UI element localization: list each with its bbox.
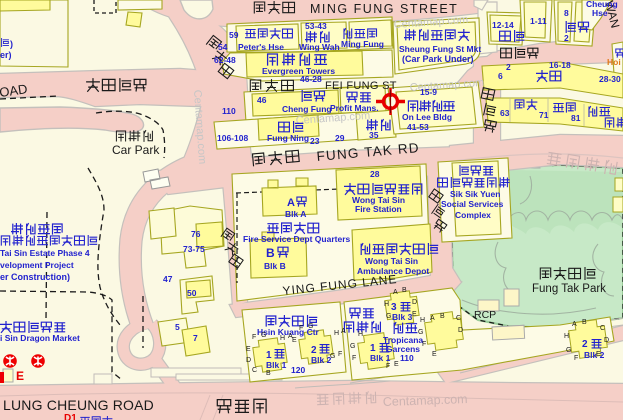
- svg-text:F: F: [252, 334, 256, 341]
- svg-text:110: 110: [400, 353, 414, 363]
- svg-text:F: F: [338, 351, 342, 358]
- svg-text:G: G: [261, 332, 266, 339]
- svg-text:41-53: 41-53: [407, 122, 429, 132]
- svg-text:D: D: [604, 337, 609, 344]
- svg-text:C: C: [252, 367, 257, 374]
- svg-text:er Construction): er Construction): [0, 272, 70, 282]
- svg-text:46: 46: [257, 95, 267, 105]
- svg-text:47: 47: [163, 274, 173, 284]
- svg-text:Ming Fung: Ming Fung: [341, 39, 384, 49]
- svg-text:Tai Sin Estate Phase 4: Tai Sin Estate Phase 4: [0, 248, 90, 258]
- svg-text:B: B: [266, 370, 271, 377]
- svg-text:Hoi: Hoi: [607, 57, 621, 67]
- svg-text:RCP: RCP: [474, 309, 496, 321]
- svg-text:Blk A: Blk A: [285, 209, 306, 219]
- svg-text:8: 8: [564, 8, 569, 18]
- svg-text:7: 7: [193, 333, 198, 343]
- svg-text:35: 35: [369, 130, 379, 140]
- svg-text:G: G: [418, 329, 423, 336]
- svg-text:28-30: 28-30: [599, 74, 621, 84]
- svg-text:E: E: [292, 337, 297, 344]
- svg-text:E: E: [394, 361, 399, 368]
- svg-text:H: H: [358, 331, 363, 338]
- svg-text:23: 23: [310, 136, 320, 146]
- svg-text:A: A: [393, 289, 398, 296]
- svg-text:E: E: [16, 369, 24, 383]
- svg-text:G: G: [308, 323, 313, 330]
- svg-text:B: B: [582, 319, 587, 326]
- svg-text:Hse: Hse: [592, 8, 608, 18]
- svg-text:H: H: [280, 335, 285, 342]
- svg-text:29: 29: [335, 133, 345, 143]
- svg-text:62-48: 62-48: [214, 55, 236, 65]
- svg-text:120: 120: [291, 365, 305, 375]
- svg-text:54: 54: [218, 42, 228, 52]
- svg-text:Wing Wah: Wing Wah: [299, 42, 340, 52]
- svg-text:C: C: [456, 315, 461, 322]
- svg-text:F: F: [574, 355, 578, 362]
- svg-text:er): er): [0, 50, 12, 60]
- svg-text:B: B: [440, 313, 445, 320]
- svg-text:71: 71: [539, 110, 549, 120]
- svg-text:B: B: [266, 246, 275, 260]
- svg-text:F: F: [299, 325, 303, 332]
- svg-text:Fire Station: Fire Station: [355, 204, 402, 214]
- svg-text:(Car Park Under): (Car Park Under): [402, 54, 474, 64]
- svg-text:76: 76: [191, 229, 201, 239]
- svg-text:Evergreen Towers: Evergreen Towers: [262, 66, 335, 76]
- svg-text:Blk 3: Blk 3: [392, 312, 413, 322]
- svg-text:6: 6: [498, 71, 503, 81]
- svg-text:Blk 2: Blk 2: [584, 350, 605, 360]
- svg-text:LUNG CHEUNG ROAD: LUNG CHEUNG ROAD: [3, 397, 154, 413]
- svg-text:A: A: [287, 197, 295, 209]
- svg-text:2: 2: [582, 339, 588, 350]
- svg-text:E: E: [596, 351, 601, 358]
- svg-text:Profit Mans.: Profit Mans.: [330, 103, 379, 113]
- svg-text:G: G: [386, 313, 391, 320]
- svg-text:5: 5: [175, 322, 180, 332]
- svg-text:E: E: [246, 346, 251, 353]
- svg-text:D: D: [458, 327, 463, 334]
- svg-text:MING FUNG STREET: MING FUNG STREET: [310, 2, 458, 16]
- svg-text:F: F: [386, 363, 390, 370]
- svg-text:Blk 1: Blk 1: [370, 353, 391, 363]
- svg-text:106-108: 106-108: [217, 133, 248, 143]
- svg-text:): ): [10, 39, 13, 49]
- svg-text:Sik Sik Yuen: Sik Sik Yuen: [450, 189, 500, 199]
- svg-text:73-75: 73-75: [183, 244, 205, 254]
- svg-text:28: 28: [370, 169, 380, 179]
- svg-text:Car Park: Car Park: [112, 143, 160, 157]
- svg-text:D: D: [412, 299, 417, 306]
- svg-text:B: B: [402, 287, 407, 294]
- svg-text:2: 2: [564, 33, 569, 43]
- svg-text:A: A: [341, 328, 346, 335]
- svg-text:Blk 2: Blk 2: [311, 355, 332, 365]
- svg-text:H: H: [384, 301, 389, 308]
- svg-text:59: 59: [229, 30, 239, 40]
- svg-text:G: G: [350, 343, 355, 350]
- svg-text:Ambulance Depot: Ambulance Depot: [357, 266, 429, 276]
- svg-text:1-11: 1-11: [530, 16, 547, 26]
- svg-text:Peter's Hse: Peter's Hse: [238, 42, 284, 52]
- svg-text:D1: D1: [64, 413, 77, 420]
- svg-text:On Lee Bldg: On Lee Bldg: [402, 112, 452, 122]
- svg-text:F: F: [422, 341, 426, 348]
- svg-text:Cheng Fung: Cheng Fung: [282, 104, 332, 114]
- svg-text:Blk 1: Blk 1: [266, 360, 287, 370]
- svg-text:i Sin Dragon Market: i Sin Dragon Market: [0, 333, 80, 343]
- svg-text:A: A: [572, 321, 577, 328]
- svg-text:Fung Ning: Fung Ning: [267, 133, 309, 143]
- svg-text:Centamap.com: Centamap.com: [383, 392, 468, 409]
- svg-text:H: H: [334, 330, 339, 337]
- svg-text:12-14: 12-14: [492, 20, 514, 30]
- svg-text:16-18: 16-18: [549, 60, 571, 70]
- svg-text:50: 50: [187, 288, 197, 298]
- svg-text:velopment Project: velopment Project: [0, 260, 74, 270]
- svg-text:Fire Service Dept Quarters: Fire Service Dept Quarters: [243, 234, 351, 244]
- svg-text:F: F: [352, 355, 356, 362]
- svg-text:Social Services: Social Services: [441, 199, 504, 209]
- svg-text:2: 2: [506, 62, 511, 72]
- svg-text:E: E: [432, 351, 437, 358]
- svg-text:H: H: [564, 333, 569, 340]
- svg-text:G: G: [566, 347, 571, 354]
- svg-text:D: D: [246, 357, 251, 364]
- svg-text:FEI FUNG ST: FEI FUNG ST: [325, 80, 397, 92]
- svg-text:G: G: [330, 353, 335, 360]
- svg-text:Complex: Complex: [455, 210, 491, 220]
- svg-text:110: 110: [222, 106, 236, 116]
- svg-text:A: A: [430, 315, 435, 322]
- svg-text:Fung Tak Park: Fung Tak Park: [532, 283, 606, 295]
- svg-text:46-28: 46-28: [300, 74, 322, 84]
- svg-text:Sheung Fung St Mkt: Sheung Fung St Mkt: [399, 44, 481, 54]
- svg-text:63: 63: [500, 108, 510, 118]
- svg-text:53-43: 53-43: [305, 21, 327, 31]
- svg-text:Wong Tai Sin: Wong Tai Sin: [365, 256, 418, 266]
- svg-text:E: E: [412, 311, 417, 318]
- svg-text:81: 81: [571, 113, 581, 123]
- svg-text:15-9: 15-9: [420, 87, 437, 97]
- svg-text:Blk B: Blk B: [264, 261, 286, 271]
- svg-text:C: C: [600, 325, 605, 332]
- svg-text:H: H: [420, 317, 425, 324]
